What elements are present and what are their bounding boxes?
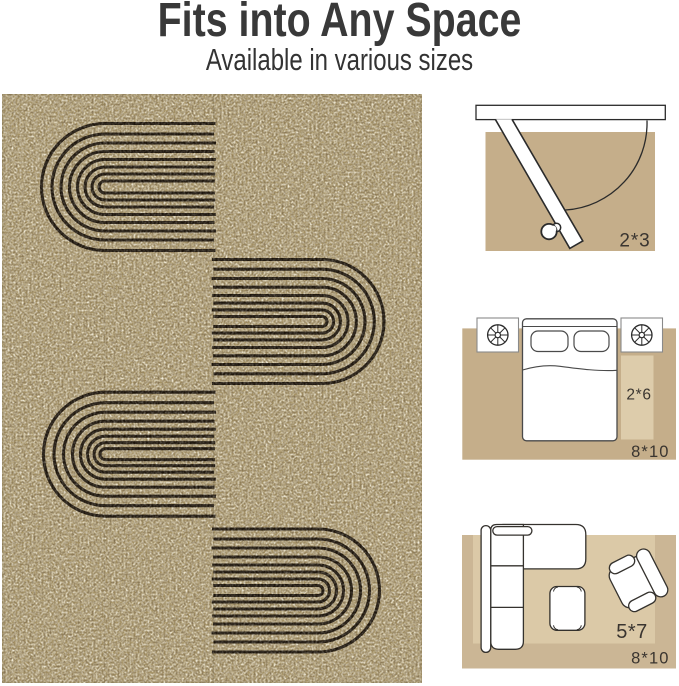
svg-text:5*7: 5*7 <box>616 621 648 643</box>
svg-text:8*10: 8*10 <box>631 650 669 668</box>
svg-text:8*10: 8*10 <box>631 443 669 461</box>
svg-text:2*6: 2*6 <box>626 387 651 404</box>
svg-text:2*3: 2*3 <box>619 230 650 251</box>
